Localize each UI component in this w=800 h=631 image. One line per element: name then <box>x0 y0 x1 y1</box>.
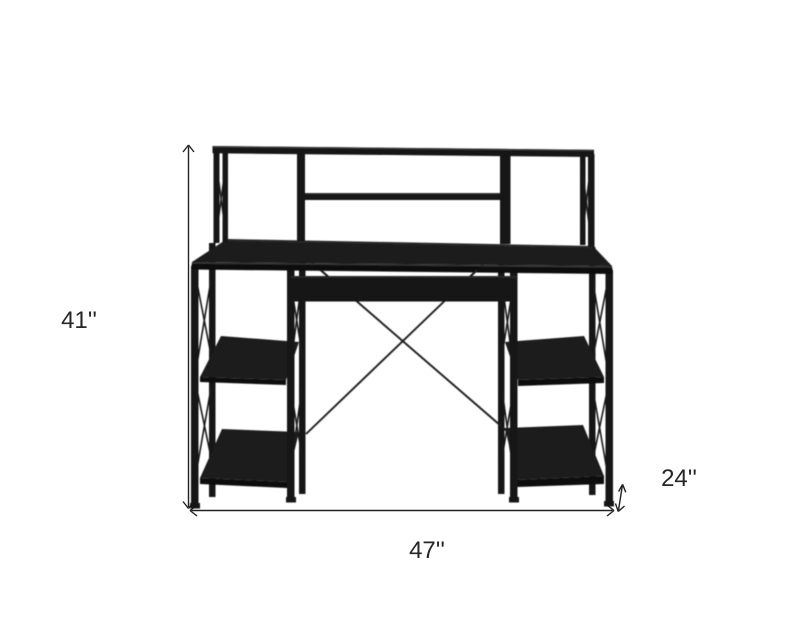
svg-text:47'': 47'' <box>409 537 445 564</box>
svg-text:24'': 24'' <box>661 465 697 492</box>
svg-text:41'': 41'' <box>61 307 97 334</box>
